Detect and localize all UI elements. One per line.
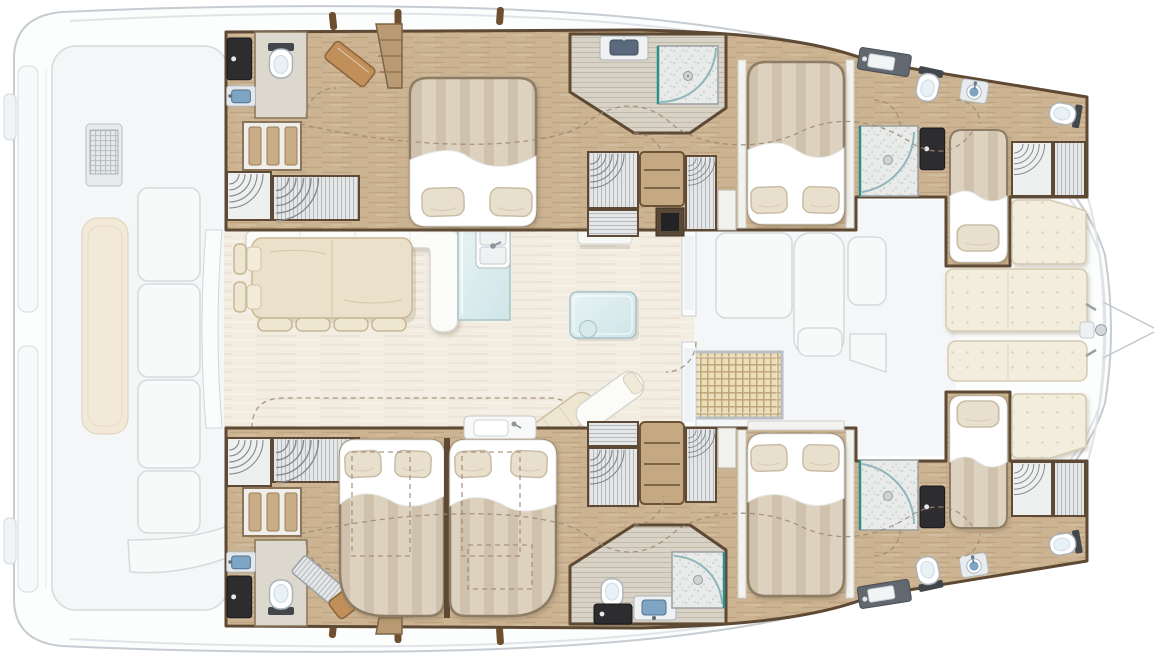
bed-side-shelf — [846, 430, 854, 598]
vanity-washbasin — [464, 416, 536, 440]
floor-plan-canvas — [0, 0, 1164, 656]
bed-side-shelf — [738, 60, 746, 228]
pillow — [490, 187, 533, 216]
transom-notch — [4, 94, 16, 140]
pillow — [751, 186, 788, 213]
bed-side-shelf — [846, 60, 854, 228]
bench-seat-cushion — [82, 218, 128, 434]
pillow — [454, 450, 491, 478]
headboard-shelf — [748, 421, 844, 430]
hanging-locker — [686, 156, 716, 230]
slatted-locker — [243, 122, 301, 170]
galley-counter — [458, 222, 510, 320]
washbasin — [600, 36, 648, 60]
door-glass — [684, 348, 694, 422]
mast-bench — [848, 237, 886, 305]
pillow — [394, 450, 431, 478]
catamaran-floor-plan — [0, 0, 1164, 656]
white-cell — [718, 190, 736, 230]
hanging-locker — [1012, 462, 1052, 516]
pillow — [422, 187, 465, 216]
toilet — [268, 43, 294, 78]
wc-door — [227, 576, 252, 618]
aft-cockpit — [52, 46, 232, 610]
pillow — [510, 450, 547, 478]
wc-door — [227, 38, 252, 80]
swim-platform-step — [18, 346, 38, 592]
cockpit-sofa-panels — [138, 188, 200, 533]
quilted-sunpad — [1012, 394, 1086, 458]
anchor-roller — [1080, 322, 1094, 338]
hanging-locker — [588, 152, 638, 208]
port-dressing-area — [588, 152, 736, 236]
quilted-sunpad — [1012, 200, 1086, 264]
pillow — [957, 225, 998, 251]
wc-door-black — [594, 604, 632, 624]
quilted-sunpad — [948, 341, 1087, 381]
shelf-column — [640, 152, 684, 206]
washbasin — [227, 552, 256, 572]
hanging-locker — [1012, 142, 1052, 196]
woven-mat — [694, 352, 782, 418]
hanging-locker — [686, 428, 716, 502]
salon — [224, 222, 696, 455]
louvered-locker — [1054, 142, 1085, 196]
shower — [658, 46, 718, 104]
anchor-windlass — [1096, 325, 1107, 336]
shelf-column — [640, 422, 684, 504]
slatted-locker — [243, 488, 301, 536]
washbasin — [634, 596, 676, 620]
washbasin — [959, 552, 989, 578]
hanging-locker — [588, 448, 638, 506]
quilted-sunpad — [946, 269, 1087, 331]
transom-notch — [4, 518, 16, 564]
pillow — [751, 444, 788, 471]
pillow — [344, 450, 381, 478]
bed-side-shelf — [738, 430, 746, 598]
pillow — [803, 186, 840, 213]
washbasin — [959, 78, 989, 104]
lounge-sofa — [716, 233, 792, 318]
port-mid-cabin — [738, 60, 854, 228]
port-hull — [226, 24, 1087, 266]
shower — [860, 460, 918, 530]
shower — [860, 126, 918, 196]
white-cell — [718, 428, 736, 468]
swim-platform-step — [18, 66, 38, 312]
steps-shadow — [580, 245, 630, 249]
hanging-locker — [227, 438, 271, 486]
starboard-hull — [226, 392, 1087, 634]
hanging-locker — [273, 176, 359, 221]
pillow — [957, 401, 998, 427]
port-aft-cabin — [410, 78, 536, 226]
louvered-locker — [1054, 462, 1085, 516]
dark-locker — [656, 208, 684, 236]
stbd-dressing-area — [588, 422, 736, 506]
locker-drawer — [588, 422, 638, 446]
dining-table — [252, 238, 416, 323]
glass-coffee-table — [570, 292, 639, 341]
stbd-mid-cabin — [738, 421, 854, 598]
low-table — [798, 328, 842, 356]
door-glass — [684, 236, 694, 310]
pillow — [803, 444, 840, 471]
shower — [672, 552, 724, 608]
washbasin — [227, 86, 256, 106]
locker-drawer — [588, 210, 638, 236]
hanging-locker — [227, 172, 271, 220]
forward-cockpit — [694, 200, 956, 456]
toilet — [268, 580, 294, 615]
module-grate — [90, 130, 118, 174]
